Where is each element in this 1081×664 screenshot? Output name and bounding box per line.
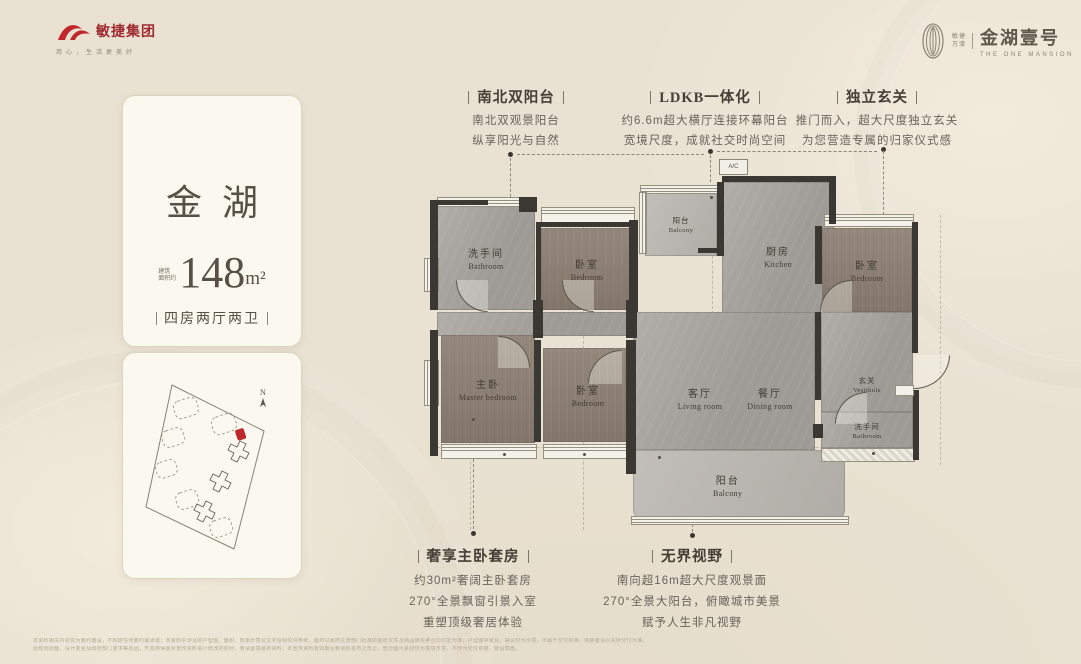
wall (813, 424, 823, 438)
window (639, 192, 647, 254)
plan-dot (710, 196, 713, 199)
wall (722, 176, 834, 182)
wall (534, 340, 541, 442)
plan-dot (872, 452, 875, 455)
room-balcony-bottom: 阳台Balcony (633, 450, 845, 520)
wall (629, 220, 638, 312)
ac-unit: A/C (719, 159, 748, 175)
room-vestibule: 玄关Vestibule (821, 312, 913, 412)
window-ledge (821, 448, 915, 462)
disclaimer-line: 因规划调整、设计变更及政府部门要求等原因，开发商保留对宣传资料进行修改的权利，敬… (33, 646, 1049, 652)
leader-line (692, 524, 693, 532)
wall (913, 390, 919, 460)
disclaimer: 本资料相关内容仅为要约邀请，不构成任何要约或承诺；本资料中涉及的户型图、面积、效… (33, 638, 1049, 654)
wall (912, 222, 918, 312)
wall (430, 438, 438, 456)
wall (430, 200, 438, 310)
window (543, 444, 635, 459)
wall (815, 226, 822, 284)
window (441, 444, 537, 459)
cabinet (895, 385, 914, 396)
leader-line (473, 459, 474, 529)
plan-dot (472, 418, 475, 421)
label-dining: 餐厅Dining room (725, 375, 815, 420)
wall (519, 197, 537, 212)
window (541, 207, 635, 223)
leader-line (510, 158, 511, 202)
poster: 敏捷集团 用心，生活更美好 敏捷 万濠 金湖壹号 THE ONE MANSION… (0, 0, 1081, 664)
wall (430, 200, 488, 205)
grid-line (940, 215, 941, 465)
floor-plan: 洗手间Bathroom 卧室Bedroom 阳台Balcony 厨房Kitche… (0, 0, 1081, 664)
plan-dot (503, 453, 506, 456)
window (640, 185, 722, 194)
disclaimer-line: 本资料相关内容仅为要约邀请，不构成任何要约或承诺；本资料中涉及的户型图、面积、效… (33, 638, 1049, 644)
wall (430, 330, 438, 444)
wall (536, 227, 541, 310)
leader-line (717, 151, 877, 152)
wall (815, 312, 821, 400)
wall (533, 300, 543, 338)
wall (829, 176, 836, 224)
leader-dot (708, 149, 713, 154)
plan-dot (583, 453, 586, 456)
wall (717, 182, 724, 256)
leader-dot (508, 152, 513, 157)
plan-dot (658, 456, 661, 459)
window (824, 214, 914, 227)
entry-door-arc (914, 355, 950, 389)
leader-dot (471, 531, 476, 536)
leader-line (883, 151, 884, 215)
window (631, 516, 849, 525)
leader-dot (690, 533, 695, 538)
leader-line (517, 154, 704, 155)
wall (536, 222, 636, 227)
leader-line (710, 155, 711, 182)
room-balcony-top: 阳台Balcony (645, 192, 717, 256)
wall (626, 300, 637, 338)
wall (912, 312, 918, 353)
wall (698, 248, 724, 253)
wall (626, 340, 636, 474)
